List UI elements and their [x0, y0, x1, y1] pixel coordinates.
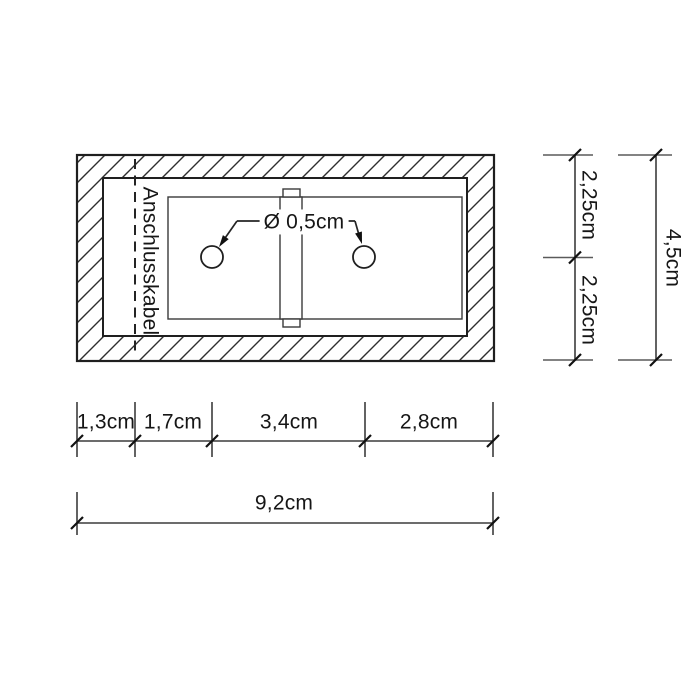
cable-label: Anschlusskabel [138, 187, 161, 336]
mounting-hole-left [201, 246, 223, 268]
dim-label-upper-height: 2,25cm [577, 170, 600, 240]
dim-label-segment-1: 1,3cm [77, 410, 135, 433]
dim-label-lower-height: 2,25cm [577, 275, 600, 345]
center-bar-top-cap [283, 189, 300, 197]
drawing-geometry [0, 0, 700, 700]
mounting-hole-right [353, 246, 375, 268]
hole-diameter-label: Ø 0,5cm [260, 209, 349, 234]
vertical-dimension-lines [543, 149, 672, 366]
dim-label-total-height: 4,5cm [661, 229, 684, 287]
dim-label-segment-4: 2,8cm [400, 410, 458, 433]
dim-label-segment-3: 3,4cm [260, 410, 318, 433]
dim-label-total-width: 9,2cm [255, 491, 313, 514]
technical-drawing-page: Anschlusskabel Ø 0,5cm 2,25cm 2,25cm 4,5… [0, 0, 700, 700]
center-bar-bottom-cap [283, 319, 300, 327]
dim-label-segment-2: 1,7cm [144, 410, 202, 433]
